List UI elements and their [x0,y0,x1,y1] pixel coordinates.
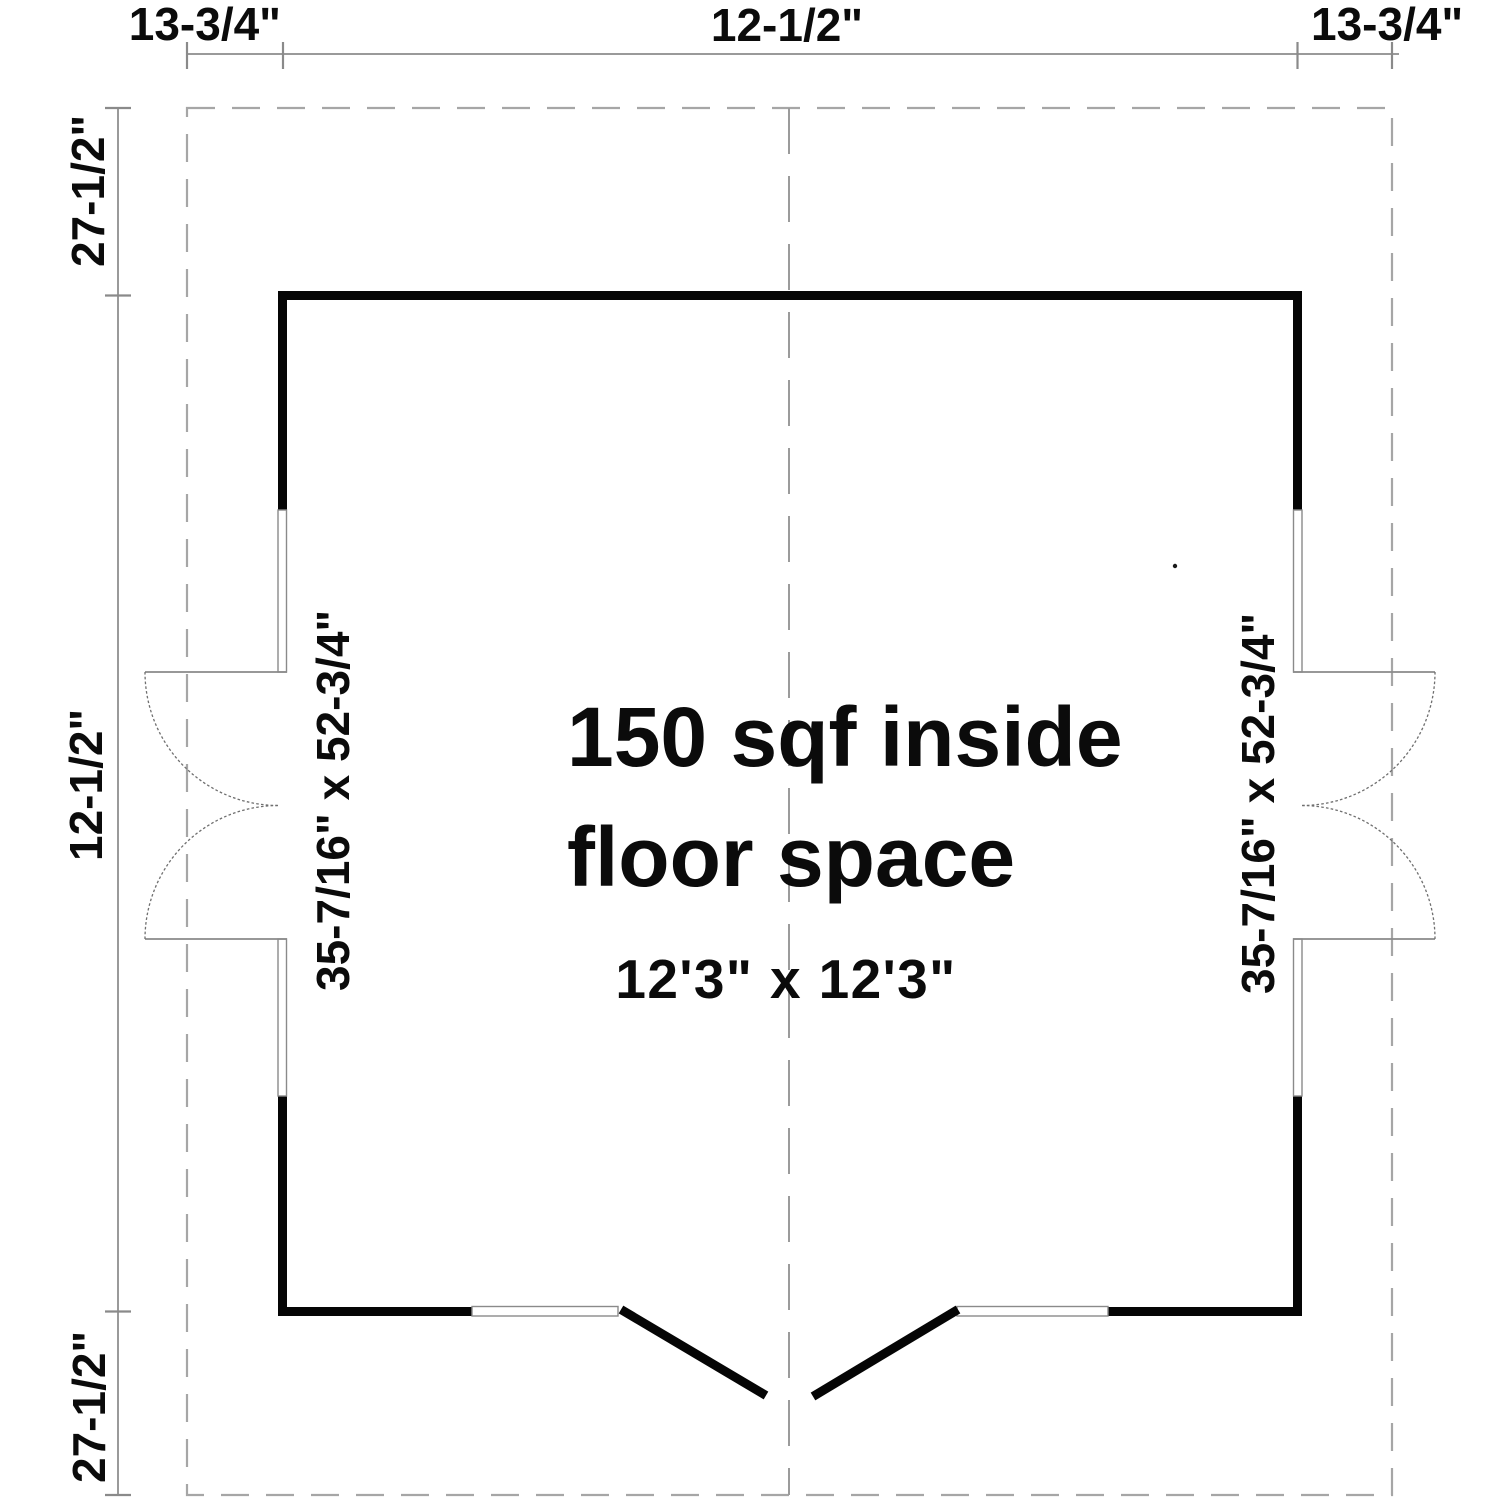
svg-text:27-1/2": 27-1/2" [62,115,114,267]
svg-text:12'3" x 12'3": 12'3" x 12'3" [615,948,956,1010]
svg-text:13-3/4": 13-3/4" [129,0,281,50]
svg-text:12-1/2": 12-1/2" [60,709,112,861]
svg-text:35-7/16" x 52-3/4": 35-7/16" x 52-3/4" [307,610,359,991]
svg-text:12-1/2": 12-1/2" [711,0,863,51]
svg-text:150 sqf inside: 150 sqf inside [567,690,1123,784]
svg-text:27-1/2": 27-1/2" [63,1331,115,1483]
svg-text:35-7/16" x 52-3/4": 35-7/16" x 52-3/4" [1232,613,1284,994]
svg-text:floor space: floor space [567,810,1015,904]
svg-text:13-3/4": 13-3/4" [1311,0,1463,50]
